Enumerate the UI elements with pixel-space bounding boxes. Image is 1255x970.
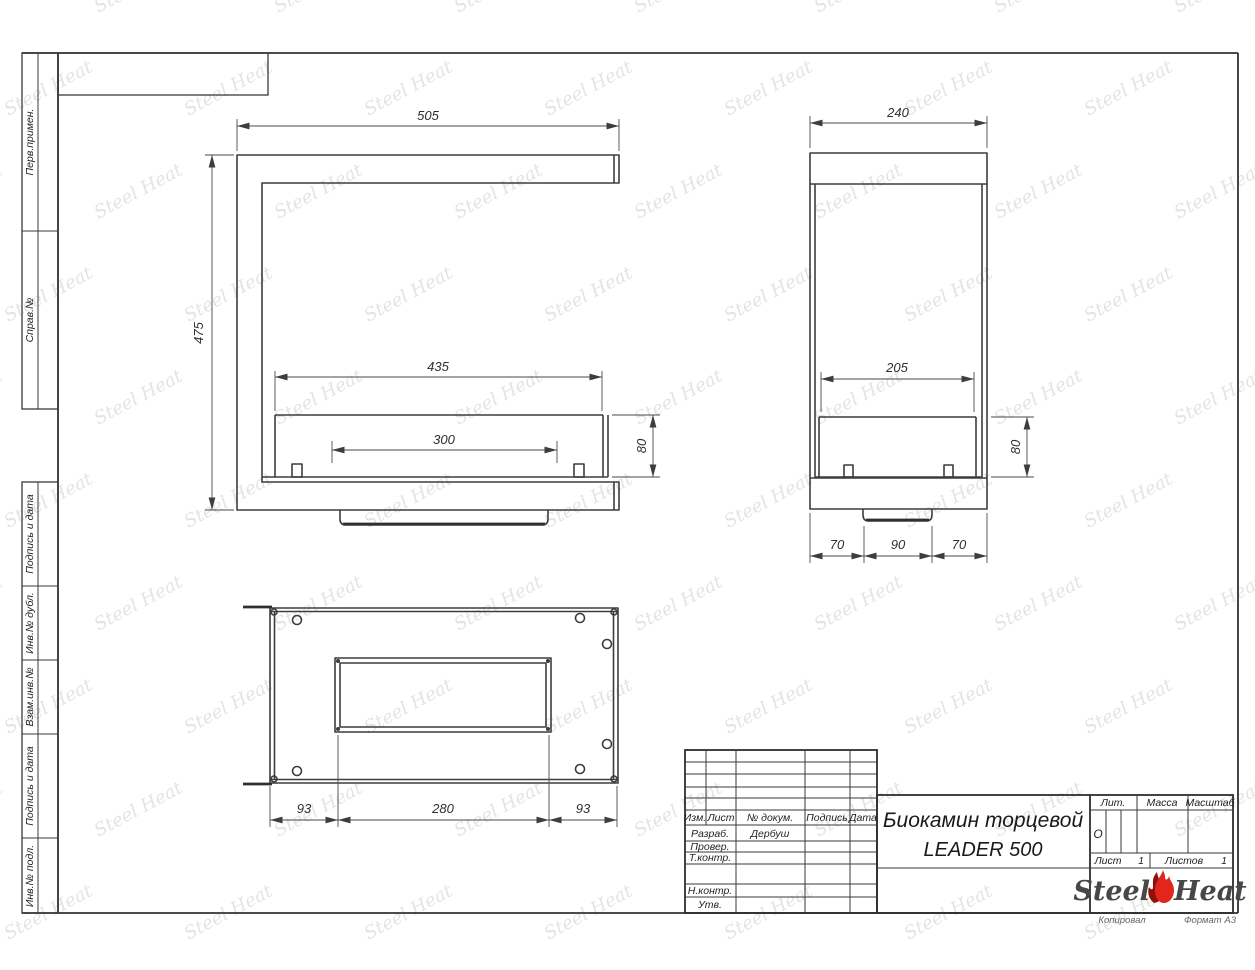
col-date: Дата: [848, 812, 877, 824]
svg-text:70: 70: [952, 537, 967, 552]
drawing-sheet: Steel HeatSteel HeatSteel HeatSteel Heat…: [0, 0, 1255, 970]
lit-label: Лит.: [1100, 797, 1126, 809]
svg-text:475: 475: [191, 321, 206, 343]
rotated-stamp-box: [58, 53, 268, 95]
sheet-number: 1: [1138, 855, 1144, 867]
strip-label-inv-podl: Инв.№ подл.: [24, 845, 36, 907]
ncontrol-label: Н.контр.: [688, 885, 732, 897]
mount-hole: [293, 616, 302, 625]
sheets-total: 1: [1221, 855, 1227, 867]
scale-label: Масштаб: [1185, 797, 1235, 809]
dim-side-glass-height: 80: [991, 417, 1034, 477]
copied-label: Копировал: [1098, 915, 1146, 926]
burner-clip-side-right: [944, 465, 953, 477]
strip-label-podpis-data-1: Подпись и дата: [24, 494, 36, 574]
approved-label: Утв.: [697, 899, 722, 911]
flame-icon: [1148, 870, 1174, 903]
mount-hole: [576, 614, 585, 623]
dim-top-widths: 93 280 93: [270, 735, 617, 827]
dim-front-glass-width: 435: [275, 359, 602, 411]
steelheat-logo: Steel Heat: [1073, 870, 1247, 907]
lit-value: О: [1093, 827, 1102, 841]
front-view: [237, 155, 619, 525]
svg-text:70: 70: [830, 537, 845, 552]
technical-drawing: Перв.примен. Справ.№ Подпись и дата Инв.…: [0, 0, 1255, 970]
burner-opening-outer: [335, 658, 551, 732]
svg-text:280: 280: [431, 801, 454, 816]
col-doc: № докум.: [747, 812, 793, 824]
dim-front-width: 505: [237, 108, 619, 151]
svg-text:300: 300: [433, 432, 455, 447]
strip-label-perv-primen: Перв.примен.: [24, 109, 36, 176]
brand-heat: Heat: [1173, 876, 1247, 907]
base-side: [810, 478, 987, 509]
dim-front-height: 475: [191, 155, 234, 510]
strip-label-podpis-data-2: Подпись и дата: [24, 746, 36, 826]
svg-text:80: 80: [634, 438, 649, 453]
burner-clip-side-left: [844, 465, 853, 477]
sheets-label: Листов: [1164, 855, 1204, 867]
col-izm: Изм.: [684, 812, 706, 824]
svg-text:435: 435: [427, 359, 449, 374]
side-view: [810, 153, 987, 521]
svg-text:80: 80: [1008, 439, 1023, 454]
title-block: Изм. Лист № докум. Подпись Дата Разраб. …: [684, 750, 1247, 913]
svg-text:240: 240: [886, 105, 909, 120]
mass-label: Масса: [1146, 797, 1177, 809]
developed-label: Разраб.: [691, 828, 729, 840]
burner-clip-left: [292, 464, 302, 477]
left-strip: Перв.примен. Справ.№ Подпись и дата Инв.…: [22, 53, 58, 913]
doc-title-line1: Биокамин торцевой: [883, 809, 1084, 832]
strip-label-sprav-no: Справ.№: [24, 298, 36, 343]
brand-steel: Steel: [1073, 876, 1150, 907]
dim-front-glass-height: 80: [612, 415, 660, 477]
sheet-label: Лист: [1093, 855, 1121, 867]
mount-hole: [293, 767, 302, 776]
burner-opening-inner: [340, 663, 546, 727]
format-label: Формат А3: [1184, 915, 1237, 926]
mount-hole: [576, 765, 585, 774]
burner-clip-right: [574, 464, 584, 477]
strip-label-vzam-inv: Взам.инв.№: [24, 667, 36, 726]
svg-text:205: 205: [885, 360, 908, 375]
col-sign: Подпись: [806, 812, 848, 824]
dim-side-depth: 240: [810, 105, 987, 148]
mount-hole: [603, 740, 612, 749]
col-list: Лист: [706, 812, 734, 824]
developed-value: Дербуш: [750, 828, 790, 840]
svg-text:90: 90: [891, 537, 906, 552]
svg-text:93: 93: [576, 801, 591, 816]
mount-hole: [603, 640, 612, 649]
svg-text:505: 505: [417, 108, 439, 123]
sheet-frame: [22, 53, 1238, 913]
dim-side-glass-width: 205: [821, 360, 974, 412]
doc-title-line2: LEADER 500: [924, 839, 1043, 861]
tcontrol-label: Т.контр.: [689, 852, 731, 864]
strip-label-inv-dubl: Инв.№ дубл.: [24, 592, 36, 654]
dim-front-burner-width: 300: [332, 432, 557, 463]
svg-text:93: 93: [297, 801, 312, 816]
top-view: [243, 607, 618, 784]
